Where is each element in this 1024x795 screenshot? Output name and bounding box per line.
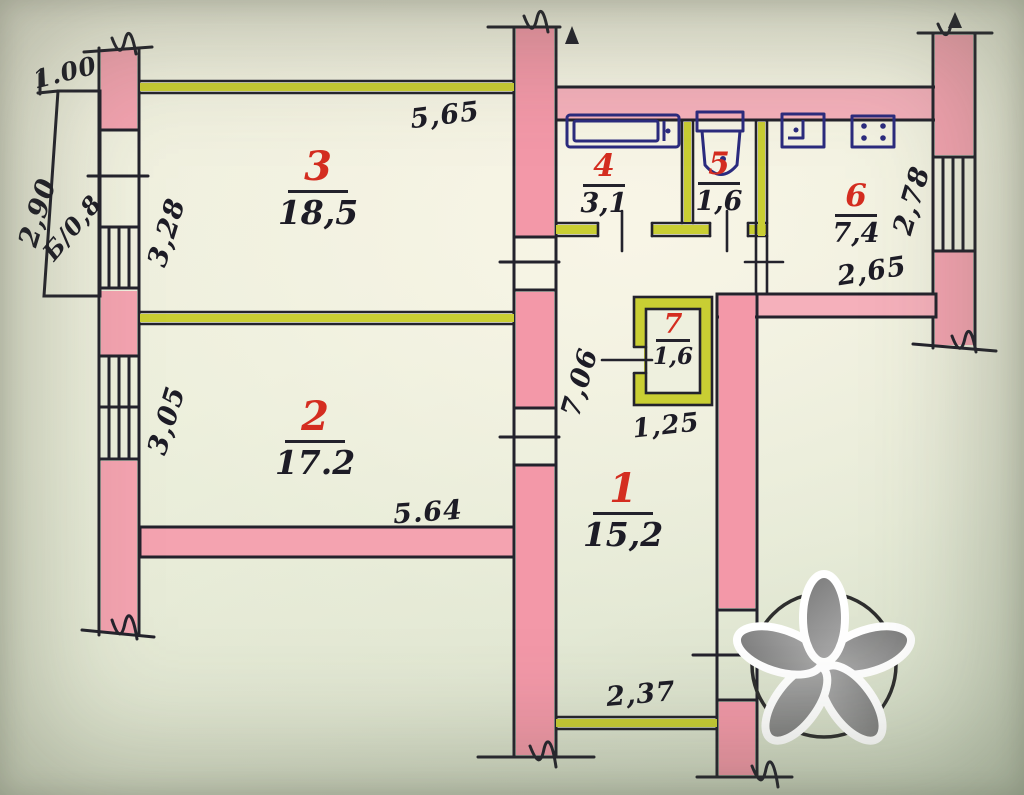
room-3-area: 18,5 [278,193,358,231]
room-4-area: 3,1 [581,187,628,218]
room-2-area: 17.2 [275,443,355,481]
hall-bottom-wall [556,717,717,729]
room-2-number: 2 [285,396,345,443]
room-1-label: 1 15,2 [563,468,683,553]
room-3-number: 3 [288,146,348,193]
room-7-label: 7 1,6 [640,311,706,369]
room-4-number: 4 [583,150,625,187]
partition-room3-top [140,81,514,93]
room2-bottom-wall [140,527,514,557]
room-6-area: 7,4 [833,217,880,248]
window-room2-icon [99,356,139,459]
room-5-area: 1,6 [696,185,743,216]
floor-plan-drawing [0,0,1024,795]
room-6-number: 6 [835,180,877,217]
room-7-area: 1,6 [653,342,693,369]
partition-room3-room2 [140,312,514,324]
room-7-number: 7 [656,311,691,342]
window-room3-icon [99,227,139,288]
floor-plan-photo: 3 18,5 2 17.2 1 15,2 4 3,1 5 1,6 6 7,4 7… [0,0,1024,795]
room-3-label: 3 18,5 [258,146,378,231]
break-arrow-icon [948,12,962,28]
room-1-number: 1 [593,468,653,515]
room-4-label: 4 3,1 [552,150,656,218]
room-5-label: 5 1,6 [675,148,763,216]
asterisk-watermark [731,574,917,751]
break-arrow-icon [565,26,579,44]
room-1-area: 15,2 [583,515,663,553]
room-5-number: 5 [698,148,740,185]
room-2-label: 2 17.2 [255,396,375,481]
window-kitchen-icon [933,157,975,251]
